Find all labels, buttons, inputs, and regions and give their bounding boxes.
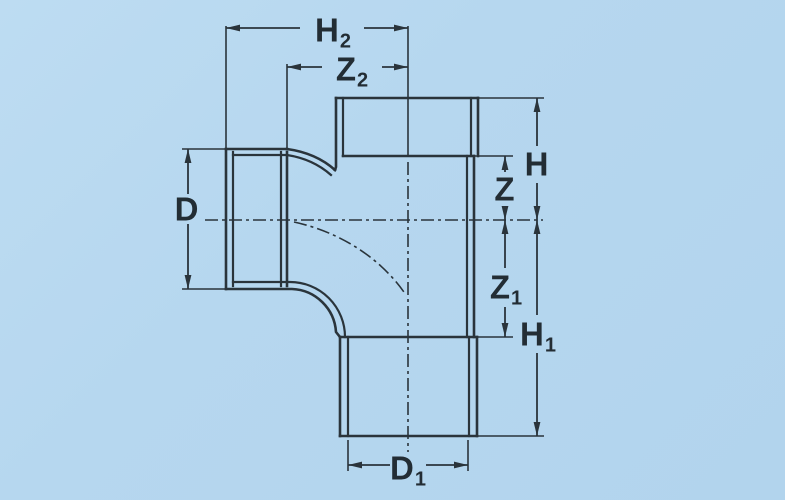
label-text: Z [494,173,514,206]
left-socket [226,149,287,289]
dimension-label-h2: H2 [315,14,351,47]
dimension-label-z: Z [494,173,515,206]
throat-outer [287,149,335,170]
label-subscript: 2 [340,32,351,52]
diagram-canvas: H2 Z2 D H Z Z1 H1 D1 [0,0,785,500]
top-socket [335,98,478,170]
dimension-label-h: H [525,148,550,181]
label-text: Z [336,53,356,86]
label-text: H [525,148,549,181]
dimension-label-z1: Z1 [490,271,522,304]
centerlines [205,162,543,452]
flow-arc-centerline [294,222,406,295]
label-text: H [520,318,544,351]
label-subscript: 1 [415,470,426,490]
label-text: D [175,193,199,226]
label-subscript: 1 [545,336,556,356]
fitting-drawing [0,0,785,500]
extension-lines [182,26,544,471]
dimension-lines [188,28,537,465]
dimension-label-h1: H1 [520,318,556,351]
label-text: Z [490,271,510,304]
label-text: H [315,14,339,47]
label-text: D [390,452,414,485]
dimension-label-d: D [175,193,200,226]
branch-walls [226,149,345,337]
label-subscript: 2 [357,71,368,91]
label-subscript: 1 [511,289,522,309]
heel-outer [226,289,340,337]
fitting-outline [226,98,478,436]
throat-inner [287,155,331,175]
dimension-label-z2: Z2 [336,53,368,86]
dimension-label-d1: D1 [390,452,426,485]
vertical-run [467,156,474,337]
